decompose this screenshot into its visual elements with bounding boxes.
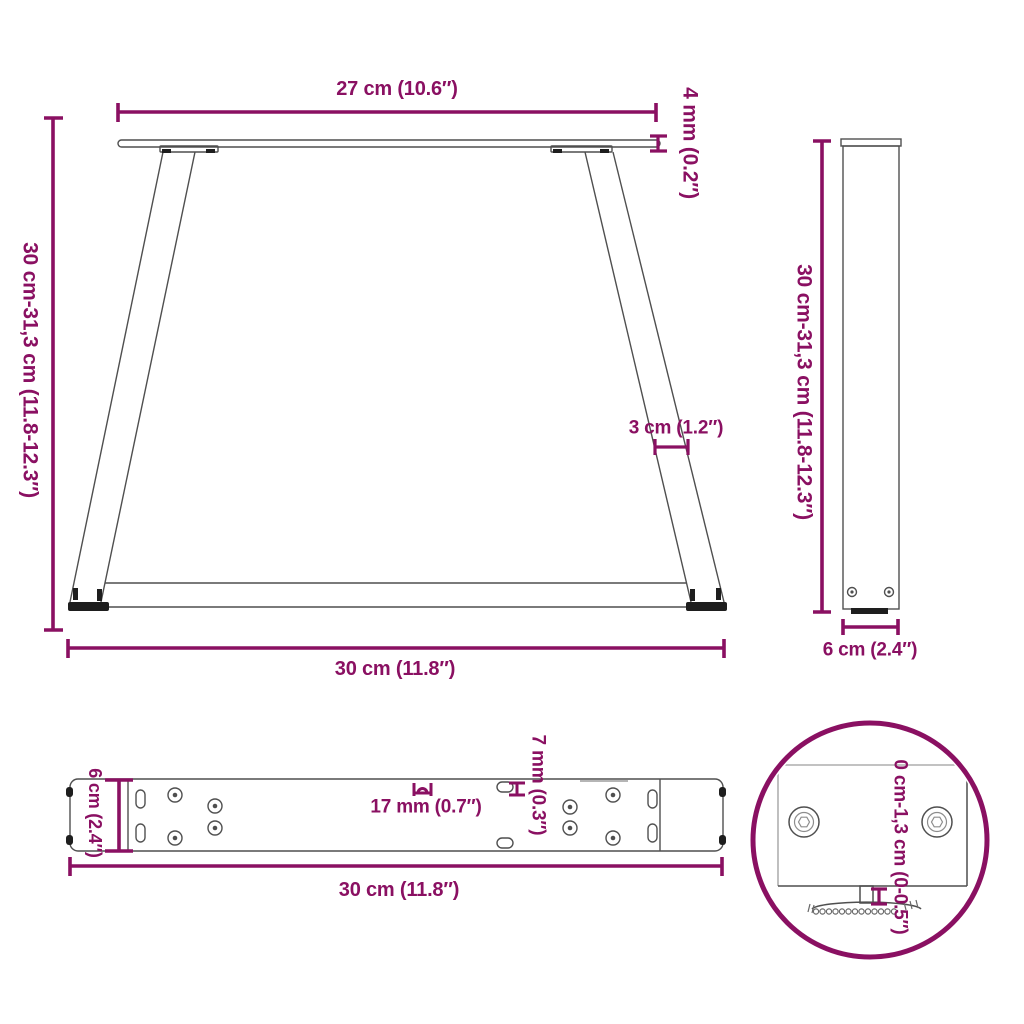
slot-hole — [648, 790, 657, 808]
edge-slot — [719, 835, 726, 845]
plate-length-label: 30 cm (11.8″) — [339, 880, 459, 900]
front-top-width-label: 27 cm (10.6″) — [336, 79, 458, 99]
bracket-weld-mark — [553, 149, 562, 153]
front-height-label: 30 cm-31,3 cm (11.8-12.3″) — [20, 242, 41, 498]
slot-hole — [136, 824, 145, 842]
right-leg-inner-edge — [585, 152, 691, 602]
edge-slot — [66, 835, 73, 845]
front-leg-width-label: 3 cm (1.2″) — [629, 419, 724, 438]
dim-plate-thickness — [650, 136, 667, 151]
plate-top-view-drawing — [66, 779, 726, 876]
side-height-label: 30 cm-31,3 cm (11.8-12.3″) — [794, 264, 815, 520]
technical-diagram — [0, 0, 1024, 1024]
foot-bolt-mark — [716, 588, 721, 600]
foot-bolt-mark — [73, 588, 78, 600]
front-view-drawing — [44, 103, 727, 658]
hex-bolt-hole — [922, 807, 952, 837]
side-top-plate — [841, 139, 901, 146]
front-base-width-label: 30 cm (11.8″) — [335, 659, 455, 679]
dim-leg-width — [655, 439, 688, 455]
diagram-canvas: 27 cm (10.6″) 4 mm (0.2″) 30 cm-31,3 cm … — [0, 0, 1024, 1024]
dim-plate-depth — [105, 780, 133, 851]
screw-center — [850, 590, 853, 593]
foot-bolt-mark — [690, 589, 695, 601]
dim-height — [44, 118, 63, 630]
center-slot-hole — [497, 838, 513, 848]
right-leg-outer-edge — [613, 152, 724, 602]
right-foot-pad — [686, 602, 727, 611]
edge-slot — [66, 787, 73, 797]
plate-slot-width-label: 7 mm (0.3″) — [529, 735, 548, 836]
slot-hole — [648, 824, 657, 842]
screw-center — [887, 590, 890, 593]
dim-side-height — [813, 141, 831, 612]
bracket-weld-mark — [206, 149, 215, 153]
detail-magnifier-circle — [753, 723, 987, 957]
dim-side-depth — [843, 619, 898, 635]
slot-width-gauge-icon — [414, 783, 431, 796]
hex-socket — [799, 817, 810, 827]
dim-slot-height — [509, 783, 525, 795]
hex-socket — [932, 817, 943, 827]
side-foot-pad — [851, 608, 888, 614]
foot-adjustment-label: 0 cm-1,3 cm (0-0.5″) — [891, 759, 910, 934]
bracket-weld-mark — [600, 149, 609, 153]
foot-detail-drawing — [753, 723, 987, 957]
side-depth-label: 6 cm (2.4″) — [823, 641, 918, 660]
edge-slot — [719, 787, 726, 797]
dim-base-width — [68, 639, 724, 658]
dim-plate-length — [70, 857, 722, 876]
bracket-weld-mark — [162, 149, 171, 153]
left-foot-pad — [68, 602, 109, 611]
left-leg-inner-edge — [101, 152, 195, 602]
front-plate-thickness-label: 4 mm (0.2″) — [680, 87, 701, 199]
left-leg-outer-edge — [70, 152, 163, 602]
plate-slot-length-label: 17 mm (0.7″) — [370, 798, 481, 817]
foot-bolt-mark — [97, 589, 102, 601]
slot-hole — [136, 790, 145, 808]
side-leg-body — [843, 146, 899, 609]
plate-depth-label: 6 cm (2.4″) — [86, 768, 104, 857]
dim-top-width — [118, 103, 656, 122]
hex-bolt-hole — [789, 807, 819, 837]
side-view-drawing — [813, 139, 901, 635]
